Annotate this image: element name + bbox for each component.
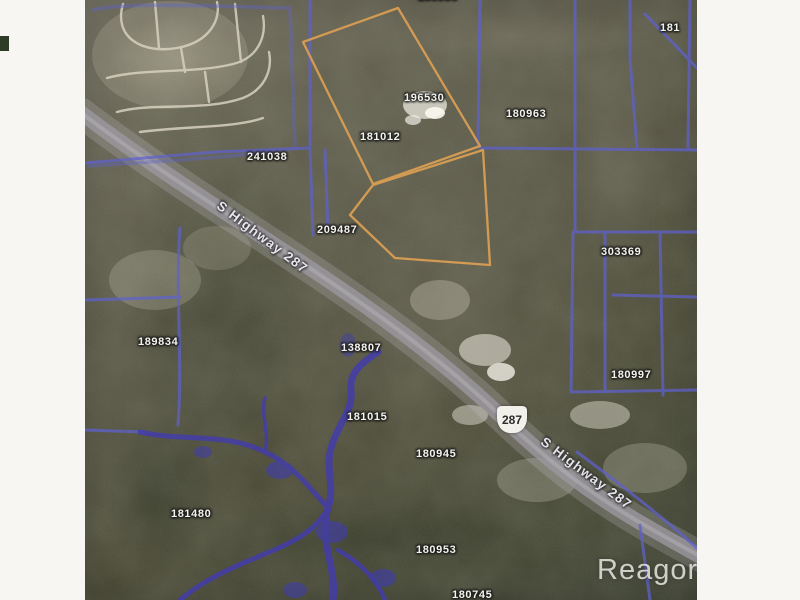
- parcel-label: 180963: [506, 108, 546, 120]
- parcel-label: 180980: [418, 0, 458, 3]
- parcel-label: 181015: [347, 411, 387, 423]
- parcel-label: 181012: [360, 131, 400, 143]
- parcel-label: 180745: [452, 589, 492, 600]
- scan-edge-mark: [0, 36, 9, 51]
- parcel-label: 180953: [416, 544, 456, 556]
- parcel-label: 138807: [341, 342, 381, 354]
- highway-shield-287: 287: [497, 406, 527, 433]
- parcel-label: 209487: [317, 224, 357, 236]
- parcel-label: 189834: [138, 336, 178, 348]
- parcel-label: 196530: [404, 92, 444, 104]
- photo-margin-left: [0, 0, 85, 600]
- parcel-label: 303369: [601, 246, 641, 258]
- aerial-parcel-map: 180980 181 196530 180963 181012 241038 2…: [85, 0, 697, 600]
- parcel-label: 181: [660, 22, 680, 34]
- parcel-label: 181480: [171, 508, 211, 520]
- photo-margin-right: [697, 0, 800, 600]
- parcel-label: 180997: [611, 369, 651, 381]
- parcel-label: 241038: [247, 151, 287, 163]
- highway-shield-number: 287: [502, 413, 522, 427]
- parcel-label: 180945: [416, 448, 456, 460]
- place-name-label: Reagor: [597, 554, 697, 587]
